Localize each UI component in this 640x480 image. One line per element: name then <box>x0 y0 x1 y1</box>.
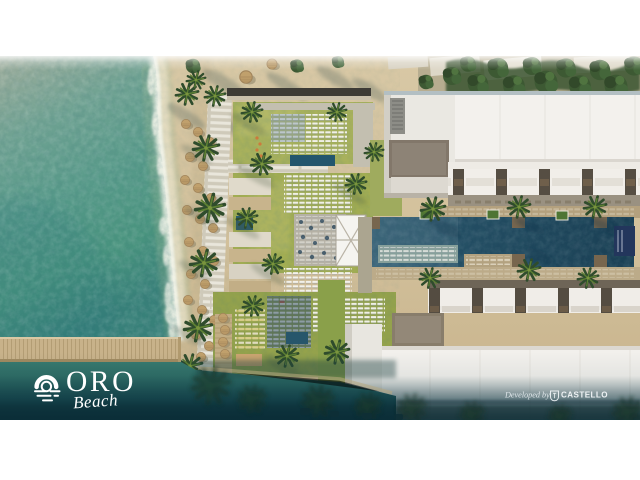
svg-text:Developed by: Developed by <box>504 391 550 400</box>
svg-text:CASTELLO: CASTELLO <box>561 391 608 400</box>
svg-text:Beach: Beach <box>72 390 118 412</box>
